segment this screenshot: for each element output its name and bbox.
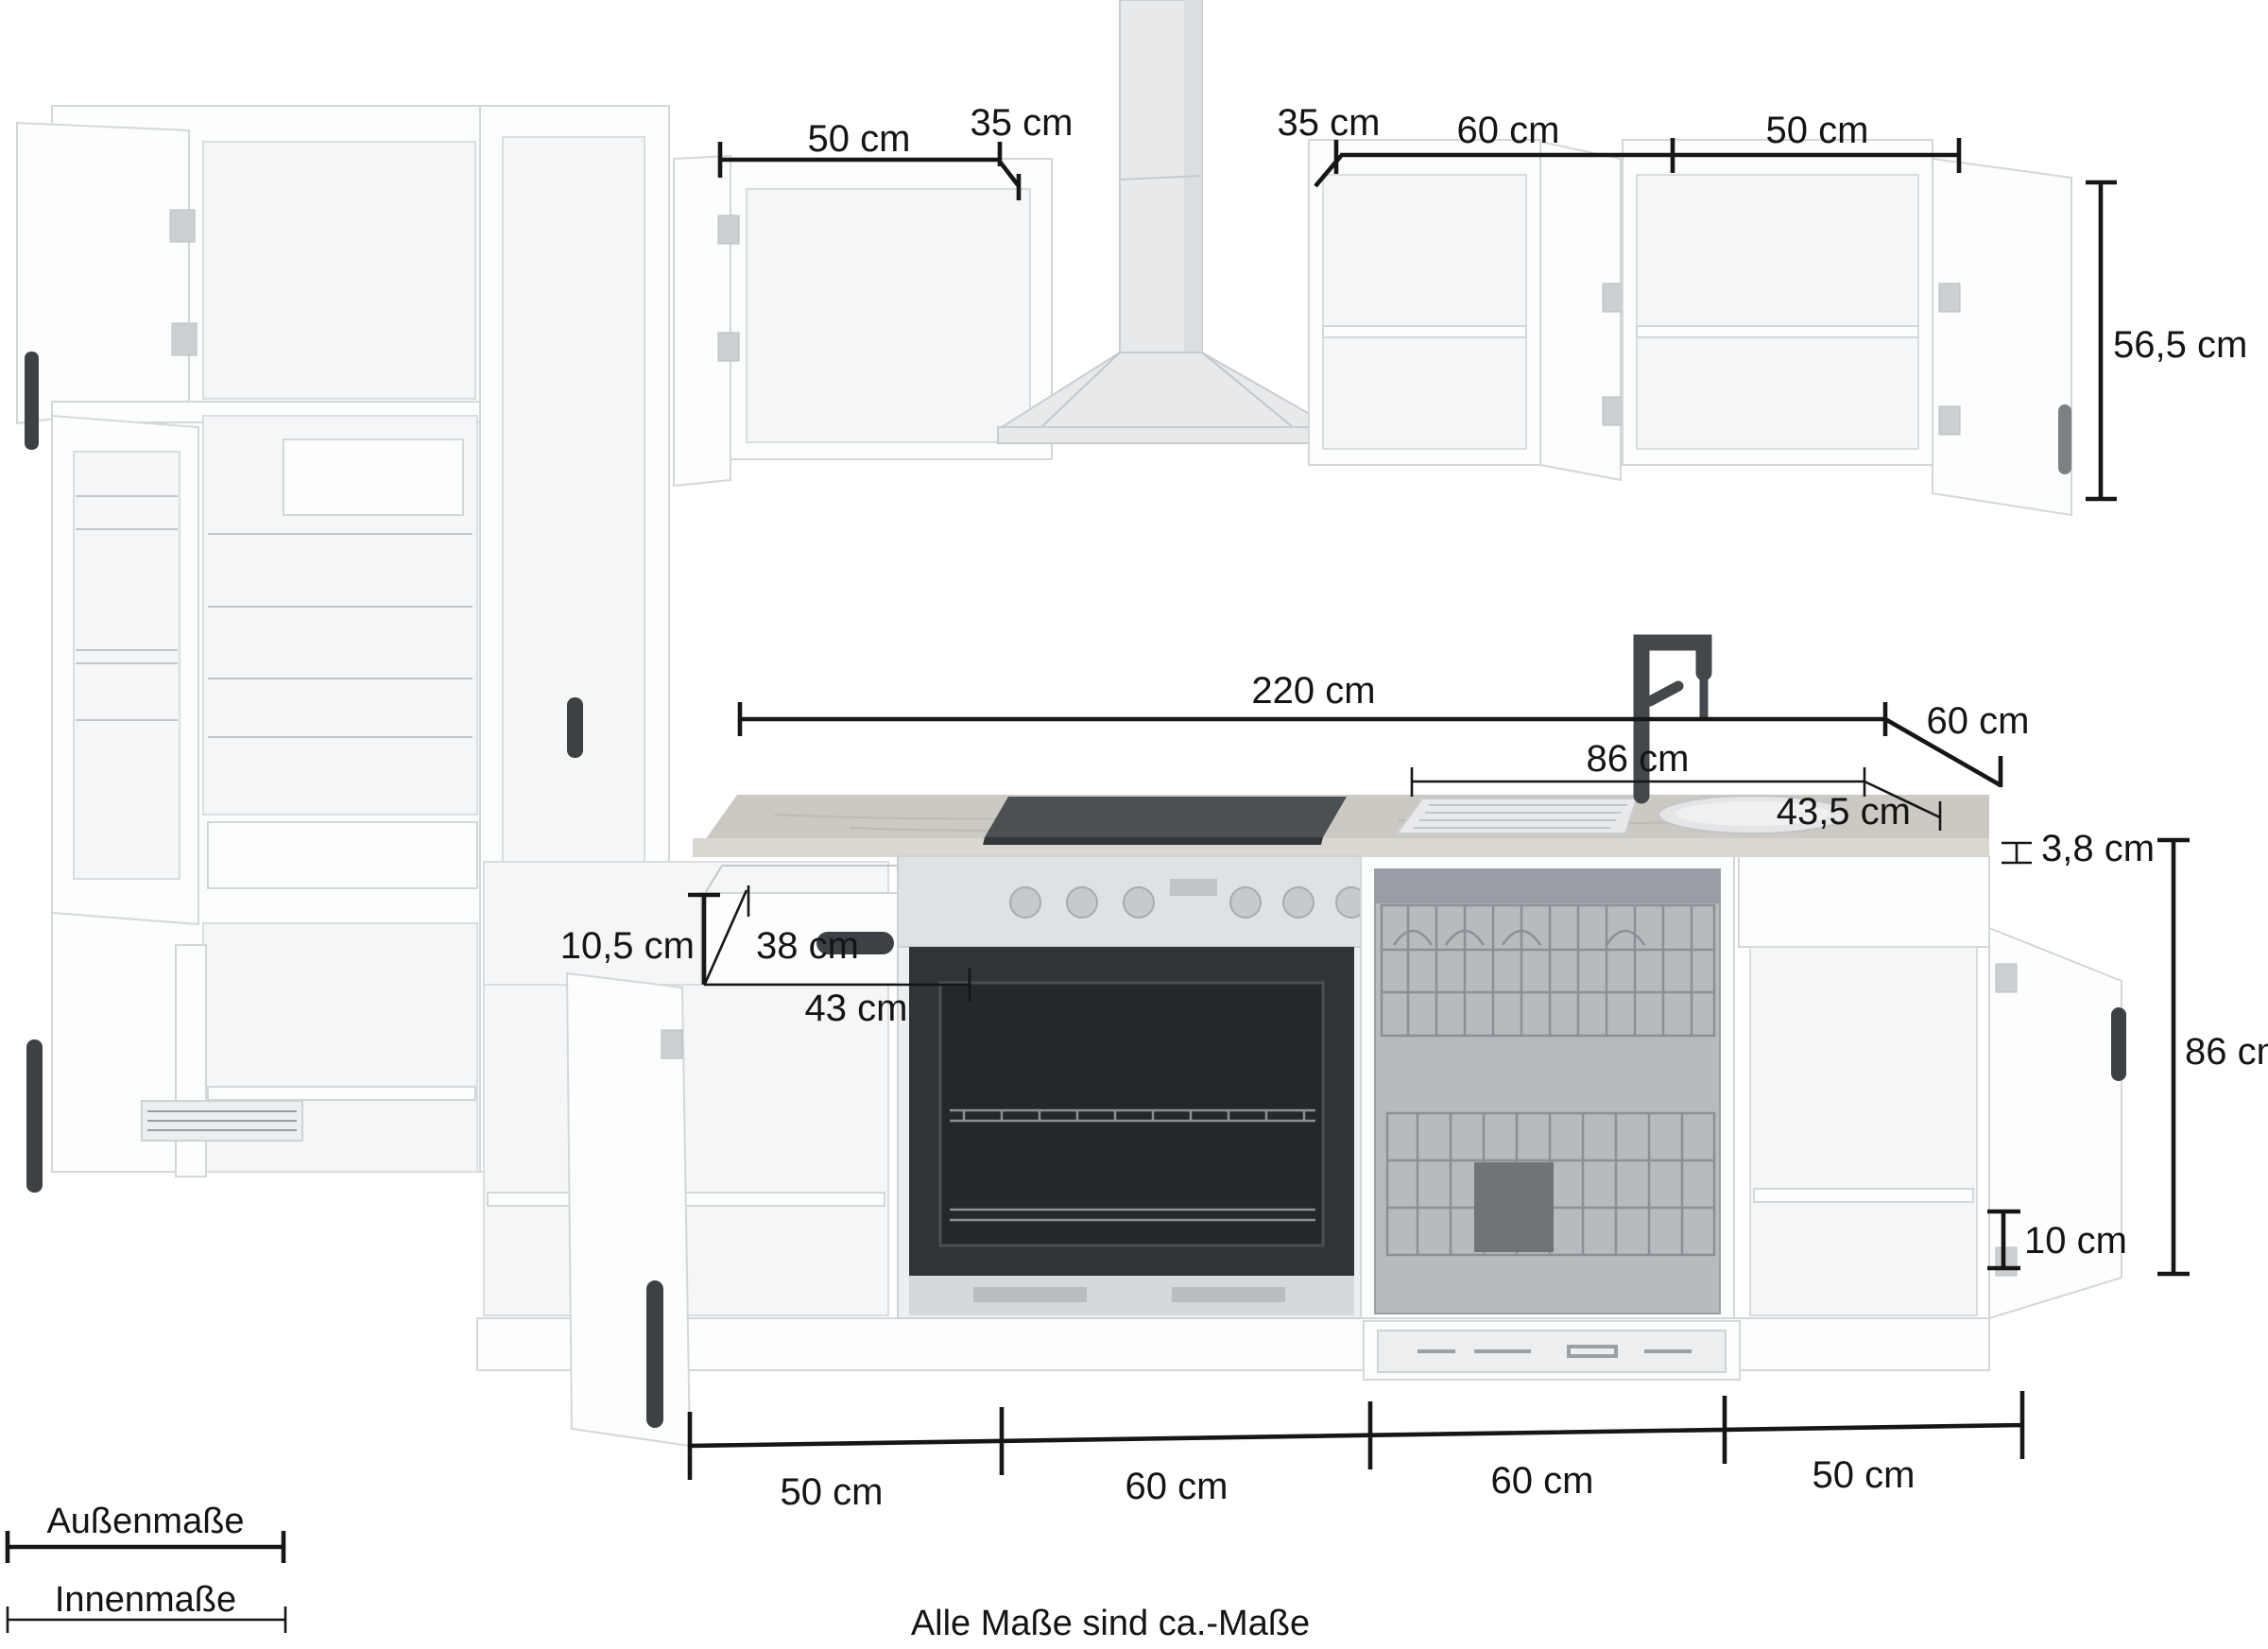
hinge-icon: [1603, 397, 1624, 425]
dim-label-sink-depth: 43,5 cm: [1777, 791, 1911, 833]
lower-shelf: [208, 1087, 475, 1100]
wall-cabinet-50-shelf: [1637, 326, 1918, 337]
wall-cabinet-left-door-open: [674, 156, 730, 486]
faucet-lever: [1650, 686, 1678, 701]
oven-vent: [1172, 1287, 1285, 1302]
dim-worktop: 220 cm 60 cm: [740, 670, 2029, 787]
hinge-icon: [170, 210, 195, 242]
hob-front-edge: [983, 837, 1323, 845]
hinge-icon: [1996, 1247, 2017, 1276]
dim-label-plinth-height: 10 cm: [2024, 1220, 2127, 1262]
base-door-handle: [646, 1280, 663, 1428]
hinge-icon: [718, 333, 739, 361]
fridge-bottom-drawer: [208, 822, 477, 888]
base-right-door-handle: [2111, 1007, 2126, 1081]
hinge-icon: [1939, 283, 1960, 312]
dim-label-base-width-4: 50 cm: [1813, 1454, 1916, 1496]
lower-door-handle: [26, 1039, 43, 1193]
oven-vent: [973, 1287, 1087, 1302]
dishwasher-interior-shadow: [1375, 869, 1720, 903]
dim-label-wall-left-depth: 35 cm: [971, 102, 1074, 144]
dishwasher-door-open: [1364, 1321, 1740, 1380]
wall-cabinet-60-interior: [1323, 175, 1526, 449]
dim-label-total-width: 220 cm: [1251, 670, 1375, 712]
dim-label-base-width-1: 50 cm: [781, 1471, 884, 1513]
worktop-front-edge: [693, 838, 1989, 857]
oven-display: [1170, 879, 1217, 896]
kitchen-diagram-svg: 50 cm 35 cm 35 cm 60 cm 50 cm 56,5 cm 22…: [0, 0, 2268, 1649]
freezer-box: [283, 439, 463, 515]
vent-grille: [142, 1101, 302, 1141]
hinge-icon: [172, 323, 197, 355]
wall-cabinet-50-interior: [1637, 175, 1918, 449]
legend-inner-label: Innenmaße: [55, 1580, 236, 1620]
hinge-icon: [1996, 964, 2017, 992]
fridge-door-handle: [25, 352, 39, 450]
dim-worktop-thickness: 3,8 cm: [2002, 828, 2155, 869]
hinge-icon: [718, 215, 739, 244]
fridge-housing-unit: [17, 106, 482, 1193]
wall-cabinet-60-shelf: [1323, 326, 1526, 337]
dim-label-wall-right-width-60: 60 cm: [1457, 110, 1560, 151]
oven: [898, 856, 1366, 1318]
dim-wall-height: 56,5 cm: [2086, 182, 2247, 499]
dim-label-base-width-2: 60 cm: [1125, 1466, 1228, 1507]
pantry-handle: [567, 697, 583, 758]
dim-label-drawer-width: 43 cm: [805, 988, 908, 1029]
dim-label-sink-width: 86 cm: [1587, 738, 1690, 780]
dim-label-base-height: 86 cm: [2185, 1031, 2268, 1073]
dim-line-worktop-thickness: [2002, 843, 2032, 863]
hinge-icon: [1939, 406, 1960, 435]
lower-door-edge: [176, 945, 206, 1177]
dim-label-wall-left-width: 50 cm: [808, 118, 911, 160]
plinth: [477, 1318, 1989, 1370]
hinge-icon: [1603, 283, 1624, 312]
fridge-upper-door-open: [17, 123, 189, 423]
cutlery-basket: [1474, 1162, 1554, 1252]
wall-cabinet-left: [674, 156, 1052, 486]
dim-label-base-width-3: 60 cm: [1491, 1460, 1594, 1502]
base-right-opening: [1750, 947, 1977, 1315]
dim-label-wall-height: 56,5 cm: [2113, 324, 2247, 366]
dim-label-drawer-height: 10,5 cm: [560, 925, 695, 967]
wall-door-handle: [2058, 404, 2071, 474]
dishwasher: [1361, 856, 1740, 1380]
footer-note: Alle Maße sind ca.-Maße: [911, 1604, 1310, 1643]
hob: [983, 797, 1347, 845]
legend: Außenmaße Innenmaße: [8, 1502, 285, 1633]
fridge-upper-compartment: [203, 142, 475, 399]
fridge-door-glass-panel: [74, 452, 180, 879]
dim-label-wall-right-width-50: 50 cm: [1766, 110, 1869, 151]
wall-cabinet-50-door-open: [1933, 159, 2071, 515]
dim-label-worktop-depth: 60 cm: [1927, 700, 2030, 742]
wall-cabinet-50: [1623, 140, 2071, 515]
hood-lip: [998, 427, 1336, 443]
legend-outer-label: Außenmaße: [46, 1502, 244, 1541]
dim-base-widths: 50 cm 60 cm 60 cm 50 cm: [690, 1391, 2022, 1513]
hob-surface: [985, 797, 1347, 837]
hinge-icon: [661, 1030, 682, 1058]
base-right-shelf: [1754, 1189, 1973, 1202]
dim-label-wall-right-depth: 35 cm: [1278, 102, 1381, 144]
product-dimension-diagram: 50 cm 35 cm 35 cm 60 cm 50 cm 56,5 cm 22…: [0, 0, 2268, 1649]
wall-cabinet-left-interior: [747, 189, 1030, 442]
dim-label-worktop-thickness: 3,8 cm: [2041, 828, 2155, 869]
dim-label-drawer-depth: 38 cm: [756, 925, 859, 967]
wall-cabinet-60: [1309, 140, 1624, 480]
base-right-top-panel: [1739, 856, 1989, 947]
